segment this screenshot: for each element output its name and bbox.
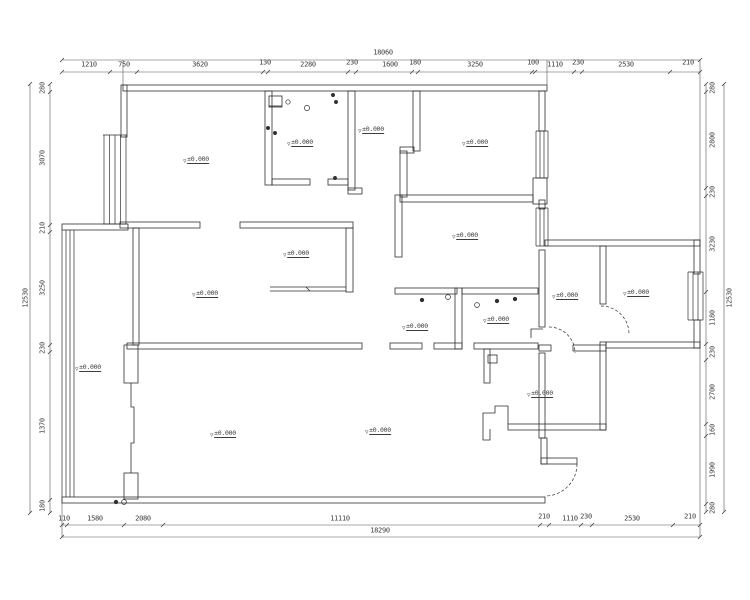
kitchen-counter [269, 96, 282, 107]
right-window-upper [536, 131, 548, 178]
door-arc-entry [545, 464, 577, 496]
fixtures [114, 93, 517, 504]
bay-window [103, 135, 127, 224]
closet-slider [270, 287, 346, 291]
left-window-strip [62, 230, 74, 497]
windows [62, 131, 703, 497]
floor-plan-page: 18060 18290 12530 12530 1210750362013022… [0, 0, 750, 600]
wing-window [688, 272, 703, 320]
detail-lines [131, 96, 543, 473]
door-arc-hall [549, 327, 575, 353]
balcony-slider [131, 383, 134, 473]
dimension-ticks [48, 70, 708, 527]
walls [62, 85, 700, 503]
floor-plan-canvas [0, 0, 750, 600]
door-arc-bedroom [601, 306, 629, 334]
door-arcs [545, 306, 629, 496]
corner-bracket [531, 329, 543, 338]
entry-niche [483, 406, 508, 440]
